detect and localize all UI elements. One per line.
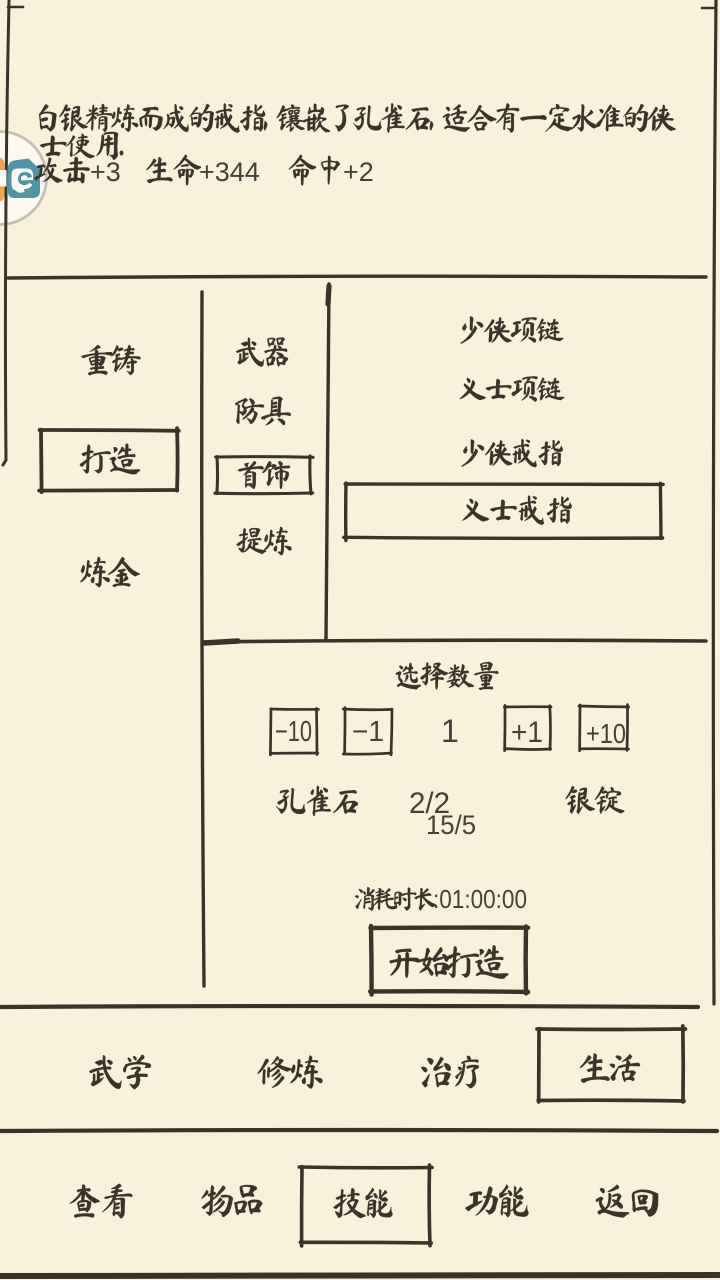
svg-text:+10: +10: [586, 718, 626, 749]
svg-text:+3: +3: [90, 157, 121, 187]
svg-text:−10: −10: [275, 716, 312, 748]
svg-text:1: 1: [441, 713, 459, 749]
svg-text:+1: +1: [511, 716, 543, 749]
svg-text:+2: +2: [343, 157, 374, 187]
svg-text:+344: +344: [199, 157, 260, 187]
svg-text:15/5: 15/5: [426, 810, 476, 840]
svg-text:−1: −1: [352, 716, 384, 748]
svg-text::01:00:00: :01:00:00: [433, 884, 527, 914]
